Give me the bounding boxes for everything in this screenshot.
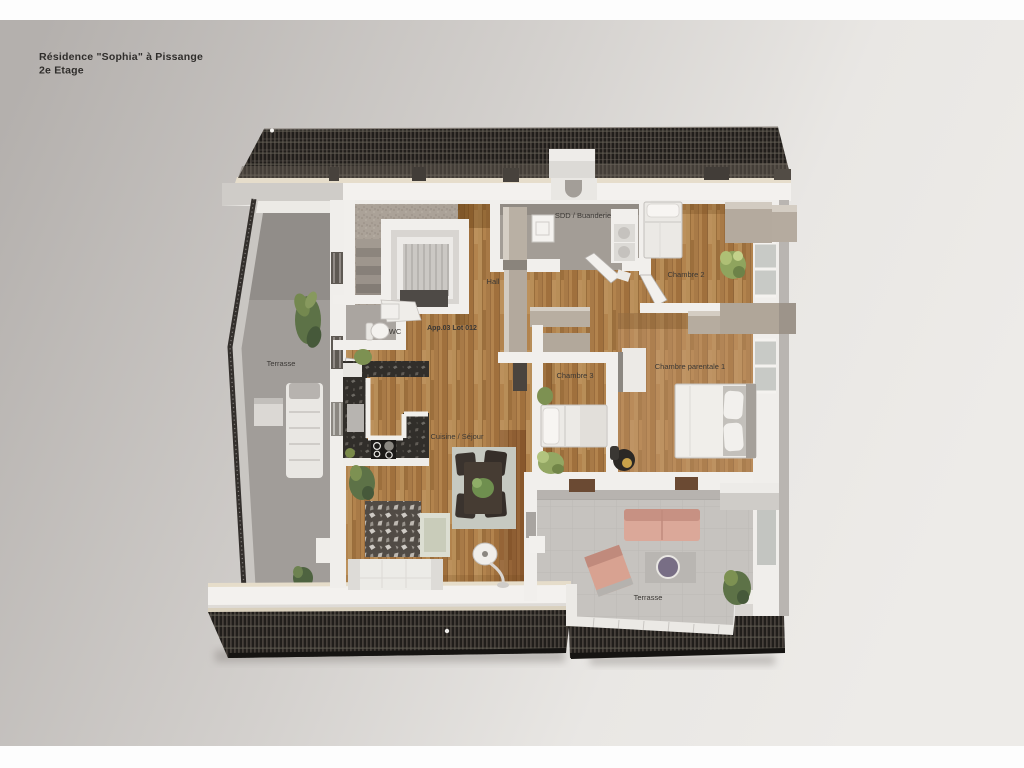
svg-text:Hall: Hall <box>487 277 500 286</box>
svg-text:WC: WC <box>389 327 402 336</box>
svg-text:Terrasse: Terrasse <box>267 359 296 368</box>
svg-text:SDD / Buanderie: SDD / Buanderie <box>555 211 611 220</box>
svg-text:Chambre 2: Chambre 2 <box>667 270 704 279</box>
svg-text:Terrasse: Terrasse <box>634 593 663 602</box>
svg-text:Chambre 3: Chambre 3 <box>556 371 593 380</box>
svg-text:Résidence "Sophia" à Pissange: Résidence "Sophia" à Pissange <box>39 51 203 63</box>
svg-text:Cuisine / Séjour: Cuisine / Séjour <box>431 432 484 441</box>
svg-text:Chambre parentale 1: Chambre parentale 1 <box>655 362 725 371</box>
svg-text:2e Etage: 2e Etage <box>39 65 84 77</box>
svg-text:App.03 Lot 012: App.03 Lot 012 <box>427 325 477 332</box>
